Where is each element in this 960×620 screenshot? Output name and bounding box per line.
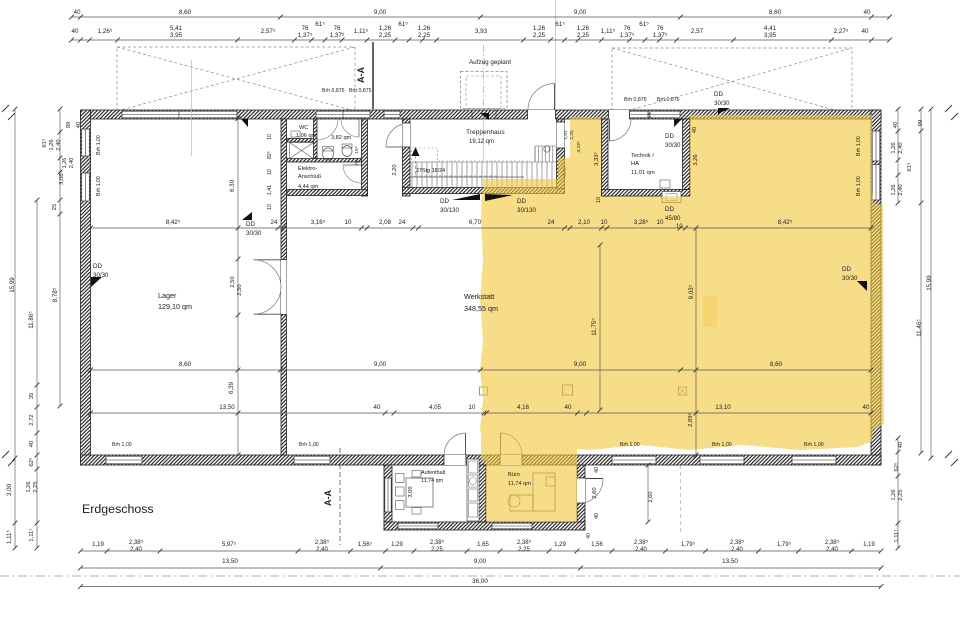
svg-text:40: 40 bbox=[898, 442, 904, 448]
svg-text:2,25: 2,25 bbox=[431, 547, 443, 553]
svg-text:DD: DD bbox=[93, 263, 102, 270]
svg-text:61⁵: 61⁵ bbox=[398, 21, 408, 28]
svg-text:1,26⁵: 1,26⁵ bbox=[98, 28, 113, 35]
svg-text:76: 76 bbox=[301, 25, 309, 32]
svg-text:61⁵: 61⁵ bbox=[555, 21, 565, 28]
svg-text:11,74 qm: 11,74 qm bbox=[421, 478, 444, 484]
svg-text:3,95: 3,95 bbox=[764, 32, 777, 39]
svg-text:2,25: 2,25 bbox=[379, 32, 392, 39]
svg-text:30/30: 30/30 bbox=[842, 275, 858, 282]
svg-text:30/30: 30/30 bbox=[665, 142, 681, 149]
svg-text:6,30: 6,30 bbox=[229, 179, 236, 192]
svg-text:40: 40 bbox=[861, 28, 869, 35]
svg-text:11,46⁵: 11,46⁵ bbox=[916, 319, 923, 337]
svg-text:4,44 qm: 4,44 qm bbox=[298, 184, 319, 190]
svg-text:9,00: 9,00 bbox=[474, 558, 487, 565]
svg-text:10: 10 bbox=[676, 224, 683, 230]
svg-text:2,38⁵: 2,38⁵ bbox=[730, 539, 745, 546]
svg-text:9,00: 9,00 bbox=[374, 361, 387, 368]
svg-text:2,38⁵: 2,38⁵ bbox=[634, 539, 649, 546]
svg-text:Brh 1,00: Brh 1,00 bbox=[299, 442, 319, 448]
svg-text:1,29: 1,29 bbox=[391, 542, 403, 548]
svg-text:1,26: 1,26 bbox=[891, 142, 897, 153]
svg-text:2,40: 2,40 bbox=[130, 547, 142, 553]
svg-text:2,60: 2,60 bbox=[592, 487, 598, 498]
svg-text:1,56⁵: 1,56⁵ bbox=[358, 541, 373, 548]
svg-text:1,65: 1,65 bbox=[477, 542, 489, 548]
svg-text:2,38⁵: 2,38⁵ bbox=[825, 539, 840, 546]
svg-text:35: 35 bbox=[29, 393, 35, 399]
svg-text:3,16⁵: 3,16⁵ bbox=[311, 219, 326, 226]
svg-text:6,39: 6,39 bbox=[228, 381, 235, 394]
svg-text:9,03⁵: 9,03⁵ bbox=[688, 284, 695, 299]
svg-text:2,25: 2,25 bbox=[533, 32, 546, 39]
svg-text:13,50: 13,50 bbox=[722, 558, 738, 565]
svg-text:2,25: 2,25 bbox=[569, 130, 575, 140]
svg-text:1,11⁵: 1,11⁵ bbox=[601, 28, 616, 35]
svg-text:10: 10 bbox=[469, 404, 476, 411]
svg-text:Brh 1,00: Brh 1,00 bbox=[804, 442, 824, 448]
svg-text:40: 40 bbox=[71, 28, 79, 35]
svg-text:40: 40 bbox=[594, 513, 600, 519]
svg-text:61⁵: 61⁵ bbox=[906, 162, 913, 171]
svg-text:2,57: 2,57 bbox=[691, 28, 704, 35]
svg-text:2,38⁵: 2,38⁵ bbox=[430, 539, 445, 546]
svg-text:2,40: 2,40 bbox=[635, 547, 647, 553]
svg-text:11,01 qm: 11,01 qm bbox=[631, 170, 655, 176]
svg-text:2,38⁵: 2,38⁵ bbox=[315, 539, 330, 546]
svg-text:1,26: 1,26 bbox=[533, 25, 546, 32]
svg-text:8,42⁵: 8,42⁵ bbox=[778, 219, 793, 226]
svg-text:61⁵: 61⁵ bbox=[639, 21, 649, 28]
svg-text:DD: DD bbox=[517, 198, 526, 205]
svg-text:36,00: 36,00 bbox=[472, 578, 488, 585]
svg-text:2,60: 2,60 bbox=[648, 491, 654, 502]
svg-text:Technik /: Technik / bbox=[631, 153, 654, 159]
svg-text:Brh 1,00: Brh 1,00 bbox=[96, 176, 102, 196]
svg-text:24: 24 bbox=[548, 219, 555, 226]
svg-text:75: 75 bbox=[354, 160, 360, 166]
svg-text:13,10: 13,10 bbox=[715, 404, 731, 411]
svg-text:3,82 qm: 3,82 qm bbox=[331, 135, 352, 141]
svg-text:15⁵: 15⁵ bbox=[354, 146, 360, 153]
svg-text:40: 40 bbox=[692, 127, 698, 133]
svg-text:3,23⁵: 3,23⁵ bbox=[576, 141, 582, 152]
svg-text:1,11⁵: 1,11⁵ bbox=[28, 528, 35, 542]
svg-text:Brh 1,00: Brh 1,00 bbox=[856, 176, 862, 196]
svg-text:5,41: 5,41 bbox=[170, 25, 183, 32]
svg-text:2,38⁵: 2,38⁵ bbox=[517, 539, 532, 546]
svg-text:1,19: 1,19 bbox=[863, 542, 875, 548]
svg-text:A-A: A-A bbox=[356, 67, 366, 83]
svg-text:2,25: 2,25 bbox=[577, 32, 590, 39]
svg-text:8,60: 8,60 bbox=[179, 361, 192, 368]
svg-text:2,40: 2,40 bbox=[898, 184, 904, 195]
svg-text:45/80: 45/80 bbox=[665, 215, 681, 222]
svg-text:6,70: 6,70 bbox=[469, 219, 482, 226]
svg-text:Aufzug geplant: Aufzug geplant bbox=[469, 59, 511, 66]
svg-text:DD: DD bbox=[665, 133, 674, 140]
svg-text:1,56: 1,56 bbox=[591, 542, 603, 548]
svg-text:2,25: 2,25 bbox=[33, 481, 39, 492]
svg-text:9,00: 9,00 bbox=[574, 361, 587, 368]
svg-text:Brh 0,875: Brh 0,875 bbox=[322, 88, 345, 94]
svg-text:HA: HA bbox=[631, 161, 639, 167]
svg-text:40: 40 bbox=[863, 404, 870, 411]
svg-text:DD: DD bbox=[714, 91, 723, 98]
svg-text:40: 40 bbox=[374, 404, 381, 411]
svg-text:1,11⁵: 1,11⁵ bbox=[354, 28, 369, 35]
svg-text:30/30: 30/30 bbox=[714, 100, 730, 107]
svg-text:13,50: 13,50 bbox=[222, 558, 238, 565]
svg-text:10: 10 bbox=[267, 169, 273, 175]
svg-text:30/130: 30/130 bbox=[440, 207, 459, 214]
svg-text:3,33⁵: 3,33⁵ bbox=[593, 152, 600, 166]
svg-text:Brh 1,00: Brh 1,00 bbox=[712, 442, 732, 448]
svg-text:1,79⁵: 1,79⁵ bbox=[681, 541, 696, 548]
svg-text:30/130: 30/130 bbox=[517, 207, 536, 214]
svg-text:4,41: 4,41 bbox=[764, 25, 777, 32]
svg-text:129,10 qm: 129,10 qm bbox=[158, 302, 192, 311]
svg-text:99: 99 bbox=[66, 122, 72, 128]
svg-text:Lager: Lager bbox=[158, 291, 177, 300]
svg-text:76: 76 bbox=[656, 25, 664, 32]
svg-text:1,11⁵: 1,11⁵ bbox=[893, 529, 900, 543]
svg-text:25: 25 bbox=[52, 204, 58, 210]
svg-text:2,40: 2,40 bbox=[316, 547, 328, 553]
svg-text:2,57⁵: 2,57⁵ bbox=[261, 28, 276, 35]
svg-text:1,26: 1,26 bbox=[379, 25, 392, 32]
svg-text:DD: DD bbox=[440, 198, 449, 205]
svg-text:Brh 1,00: Brh 1,00 bbox=[620, 442, 640, 448]
svg-text:2,20: 2,20 bbox=[392, 164, 398, 175]
svg-text:1,37⁵: 1,37⁵ bbox=[330, 32, 345, 39]
svg-text:10: 10 bbox=[267, 134, 273, 140]
svg-text:15,99: 15,99 bbox=[9, 277, 16, 293]
svg-text:1,26: 1,26 bbox=[577, 25, 590, 32]
svg-text:62⁵: 62⁵ bbox=[893, 462, 900, 471]
svg-text:3,00: 3,00 bbox=[6, 483, 13, 496]
svg-text:1,06 qm: 1,06 qm bbox=[296, 133, 317, 139]
svg-text:10: 10 bbox=[267, 204, 273, 210]
svg-text:1,37⁵: 1,37⁵ bbox=[298, 32, 313, 39]
svg-text:5,97⁵: 5,97⁵ bbox=[222, 541, 237, 548]
svg-text:A-A: A-A bbox=[323, 490, 333, 506]
svg-text:1,26: 1,26 bbox=[26, 481, 32, 492]
svg-text:82⁵: 82⁵ bbox=[267, 151, 273, 159]
svg-text:1,37⁵: 1,37⁵ bbox=[653, 32, 668, 39]
svg-text:3,28⁵: 3,28⁵ bbox=[634, 219, 649, 226]
svg-text:8,78⁵: 8,78⁵ bbox=[52, 287, 59, 302]
svg-text:2,08: 2,08 bbox=[379, 219, 392, 226]
svg-text:4,16: 4,16 bbox=[517, 404, 530, 411]
svg-text:2,38⁵: 2,38⁵ bbox=[129, 539, 144, 546]
svg-text:3,00: 3,00 bbox=[408, 486, 414, 497]
svg-text:DD: DD bbox=[665, 206, 674, 213]
svg-text:11,86⁵: 11,86⁵ bbox=[28, 311, 35, 329]
svg-text:10: 10 bbox=[345, 219, 352, 226]
svg-text:Anschluß: Anschluß bbox=[298, 174, 322, 180]
svg-text:2,27⁵: 2,27⁵ bbox=[834, 28, 849, 35]
svg-text:WC: WC bbox=[299, 125, 308, 131]
svg-text:3,93: 3,93 bbox=[475, 28, 488, 35]
svg-text:1,29: 1,29 bbox=[554, 542, 566, 548]
svg-text:2,50: 2,50 bbox=[230, 276, 236, 287]
svg-text:Werkstatt: Werkstatt bbox=[464, 292, 494, 301]
svg-text:Brh 1,00: Brh 1,00 bbox=[96, 135, 102, 155]
svg-text:2,25: 2,25 bbox=[898, 489, 904, 500]
svg-text:1,41: 1,41 bbox=[267, 185, 273, 195]
svg-text:76: 76 bbox=[623, 25, 631, 32]
svg-text:1,11⁵: 1,11⁵ bbox=[6, 530, 13, 544]
svg-text:Büro: Büro bbox=[508, 472, 520, 478]
svg-text:3,08⁵: 3,08⁵ bbox=[58, 171, 65, 185]
svg-text:15,99: 15,99 bbox=[926, 275, 933, 291]
svg-text:1,26: 1,26 bbox=[891, 184, 897, 195]
svg-text:10: 10 bbox=[657, 219, 664, 226]
svg-text:61⁵: 61⁵ bbox=[41, 138, 48, 147]
svg-text:2,40: 2,40 bbox=[826, 547, 838, 553]
svg-text:40: 40 bbox=[76, 122, 82, 128]
svg-text:19,12 qm: 19,12 qm bbox=[469, 139, 494, 145]
svg-text:40: 40 bbox=[73, 9, 81, 16]
svg-text:DD: DD bbox=[246, 221, 255, 228]
svg-text:2,50: 2,50 bbox=[237, 284, 243, 295]
svg-text:40: 40 bbox=[565, 404, 572, 411]
svg-text:61⁵: 61⁵ bbox=[315, 21, 325, 28]
svg-text:1,26: 1,26 bbox=[891, 489, 897, 500]
svg-text:1,26: 1,26 bbox=[49, 139, 55, 150]
svg-text:Brh 0,875: Brh 0,875 bbox=[657, 97, 680, 103]
svg-text:40: 40 bbox=[586, 533, 592, 539]
svg-text:2,40: 2,40 bbox=[731, 547, 743, 553]
svg-text:24: 24 bbox=[271, 219, 278, 226]
svg-text:2,89⁵: 2,89⁵ bbox=[687, 413, 694, 427]
svg-text:11,74 qm: 11,74 qm bbox=[508, 481, 531, 487]
svg-text:Elektro-: Elektro- bbox=[298, 166, 317, 172]
svg-text:4,05: 4,05 bbox=[429, 404, 442, 411]
svg-text:40: 40 bbox=[594, 467, 600, 473]
svg-text:10: 10 bbox=[596, 197, 602, 203]
svg-text:DD: DD bbox=[842, 266, 851, 273]
svg-text:62⁵: 62⁵ bbox=[28, 457, 35, 466]
svg-text:40: 40 bbox=[29, 441, 35, 447]
svg-text:2,10: 2,10 bbox=[578, 219, 591, 226]
svg-text:2,25: 2,25 bbox=[418, 32, 431, 39]
svg-text:3,26: 3,26 bbox=[693, 154, 699, 165]
svg-text:8,60: 8,60 bbox=[179, 9, 192, 16]
svg-text:348,55 qm: 348,55 qm bbox=[464, 304, 498, 313]
svg-text:Erdgeschoss: Erdgeschoss bbox=[82, 502, 154, 516]
svg-text:Aufenthalt: Aufenthalt bbox=[421, 470, 446, 476]
svg-text:2,40: 2,40 bbox=[898, 142, 904, 153]
svg-text:9,00: 9,00 bbox=[574, 9, 587, 16]
svg-text:1,26: 1,26 bbox=[62, 158, 68, 169]
svg-text:27Stg 18/24: 27Stg 18/24 bbox=[416, 168, 445, 174]
svg-text:3,95: 3,95 bbox=[170, 32, 183, 39]
svg-text:Brh 0,875: Brh 0,875 bbox=[349, 88, 372, 94]
svg-text:2,72: 2,72 bbox=[29, 414, 35, 425]
svg-text:Treppenhaus: Treppenhaus bbox=[466, 129, 505, 136]
svg-text:2,40: 2,40 bbox=[56, 139, 62, 150]
svg-text:40: 40 bbox=[893, 122, 899, 128]
svg-text:8,60: 8,60 bbox=[770, 361, 783, 368]
svg-text:Brh 1,00: Brh 1,00 bbox=[856, 136, 862, 156]
svg-text:Brh 1,00: Brh 1,00 bbox=[112, 442, 132, 448]
svg-text:1,01: 1,01 bbox=[563, 130, 569, 140]
svg-text:1,26: 1,26 bbox=[418, 25, 431, 32]
svg-text:76: 76 bbox=[333, 25, 341, 32]
svg-text:2,40: 2,40 bbox=[69, 158, 75, 169]
svg-text:13,50: 13,50 bbox=[219, 404, 235, 411]
svg-text:11,75⁵: 11,75⁵ bbox=[591, 318, 598, 336]
svg-text:10: 10 bbox=[601, 219, 608, 226]
svg-text:8,42⁵: 8,42⁵ bbox=[166, 219, 181, 226]
svg-text:9,00: 9,00 bbox=[374, 9, 387, 16]
svg-text:2,25: 2,25 bbox=[518, 547, 530, 553]
svg-text:30/30: 30/30 bbox=[246, 230, 262, 237]
svg-text:24: 24 bbox=[399, 219, 406, 226]
svg-text:Brh 0,875: Brh 0,875 bbox=[624, 97, 647, 103]
svg-text:40: 40 bbox=[863, 9, 871, 16]
svg-text:1,37⁵: 1,37⁵ bbox=[620, 32, 635, 39]
svg-text:1,79⁵: 1,79⁵ bbox=[777, 541, 792, 548]
svg-text:8,60: 8,60 bbox=[769, 9, 782, 16]
svg-text:1,19: 1,19 bbox=[92, 542, 104, 548]
